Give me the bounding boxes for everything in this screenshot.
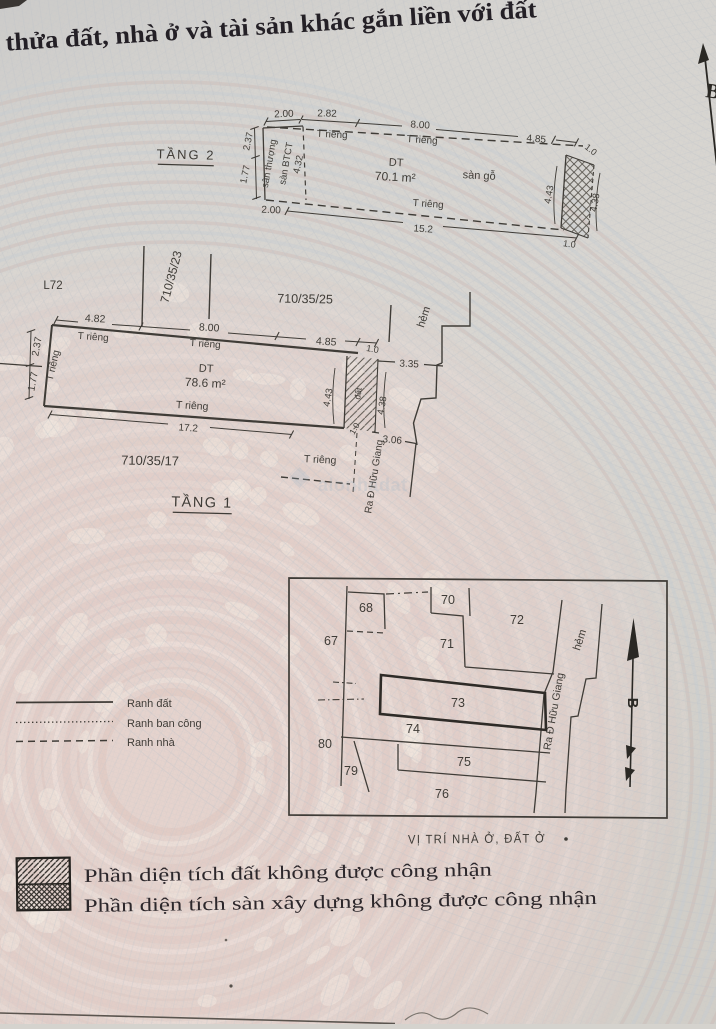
svg-text:L72: L72	[43, 280, 62, 292]
svg-text:T riêng: T riêng	[412, 198, 444, 211]
svg-text:T riêng: T riêng	[316, 129, 347, 142]
svg-text:73: 73	[451, 696, 465, 710]
svg-text:VỊ TRÍ NHÀ Ở, ĐẤT Ở: VỊ TRÍ NHÀ Ở, ĐẤT Ở	[408, 830, 546, 846]
svg-text:710/35/25: 710/35/25	[277, 292, 333, 307]
svg-text:15.2: 15.2	[413, 223, 434, 235]
svg-text:DT: DT	[199, 363, 215, 376]
svg-text:78.6 m²: 78.6 m²	[185, 375, 226, 391]
svg-text:đất: đất	[352, 386, 364, 400]
svg-text:2.82: 2.82	[317, 108, 337, 119]
svg-text:67: 67	[324, 634, 338, 648]
svg-text:3.06: 3.06	[382, 434, 403, 447]
svg-text:Ranh đất: Ranh đất	[127, 698, 172, 710]
svg-text:8.00: 8.00	[199, 321, 220, 334]
svg-text:sàn gỗ: sàn gỗ	[462, 168, 496, 183]
svg-text:17.2: 17.2	[178, 422, 199, 434]
svg-text:2.00: 2.00	[274, 109, 294, 121]
svg-text:Ranh ban công: Ranh ban công	[127, 718, 202, 730]
svg-text:72: 72	[510, 613, 524, 627]
svg-text:3.35: 3.35	[399, 359, 419, 371]
svg-text:71: 71	[440, 637, 454, 651]
svg-text:TẦNG 1: TẦNG 1	[171, 493, 233, 512]
svg-text:2.00: 2.00	[261, 205, 281, 217]
svg-text:70: 70	[441, 593, 455, 607]
svg-text:DT: DT	[389, 157, 405, 170]
svg-text:alonhadat: alonhadat	[318, 475, 408, 495]
svg-text:79: 79	[344, 764, 358, 778]
svg-text:76: 76	[435, 787, 449, 801]
svg-text:T riêng: T riêng	[406, 134, 438, 147]
svg-text:68: 68	[359, 601, 373, 615]
svg-text:8.00: 8.00	[410, 119, 431, 131]
svg-text:75: 75	[457, 755, 471, 769]
svg-text:1.0: 1.0	[563, 238, 577, 250]
svg-text:T riêng: T riêng	[77, 331, 109, 344]
svg-text:T riêng: T riêng	[189, 338, 221, 351]
svg-text:4.82: 4.82	[85, 312, 106, 325]
svg-text:4.85: 4.85	[316, 335, 337, 348]
svg-text:74: 74	[406, 722, 420, 736]
svg-text:710/35/17: 710/35/17	[121, 452, 179, 468]
svg-text:B: B	[624, 698, 640, 708]
svg-text:80: 80	[318, 737, 332, 751]
svg-text:T riêng: T riêng	[304, 453, 337, 467]
svg-text:70.1 m²: 70.1 m²	[375, 169, 416, 185]
svg-text:1.0: 1.0	[365, 343, 379, 355]
svg-text:Ranh nhà: Ranh nhà	[127, 737, 176, 749]
svg-text:TẦNG 2: TẦNG 2	[156, 146, 215, 163]
svg-text:T riêng: T riêng	[176, 399, 209, 413]
